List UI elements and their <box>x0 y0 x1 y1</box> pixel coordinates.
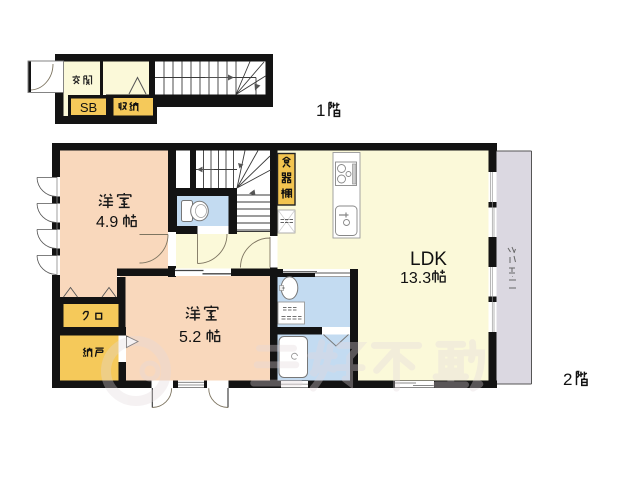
svg-text:5.2: 5.2 <box>179 329 201 346</box>
svg-text:2: 2 <box>563 370 572 389</box>
svg-text:LDK: LDK <box>410 249 447 270</box>
svg-text:4.9: 4.9 <box>96 214 118 231</box>
svg-text:1: 1 <box>316 101 325 120</box>
svg-text:13.3: 13.3 <box>400 270 431 287</box>
svg-text:SB: SB <box>80 100 97 115</box>
